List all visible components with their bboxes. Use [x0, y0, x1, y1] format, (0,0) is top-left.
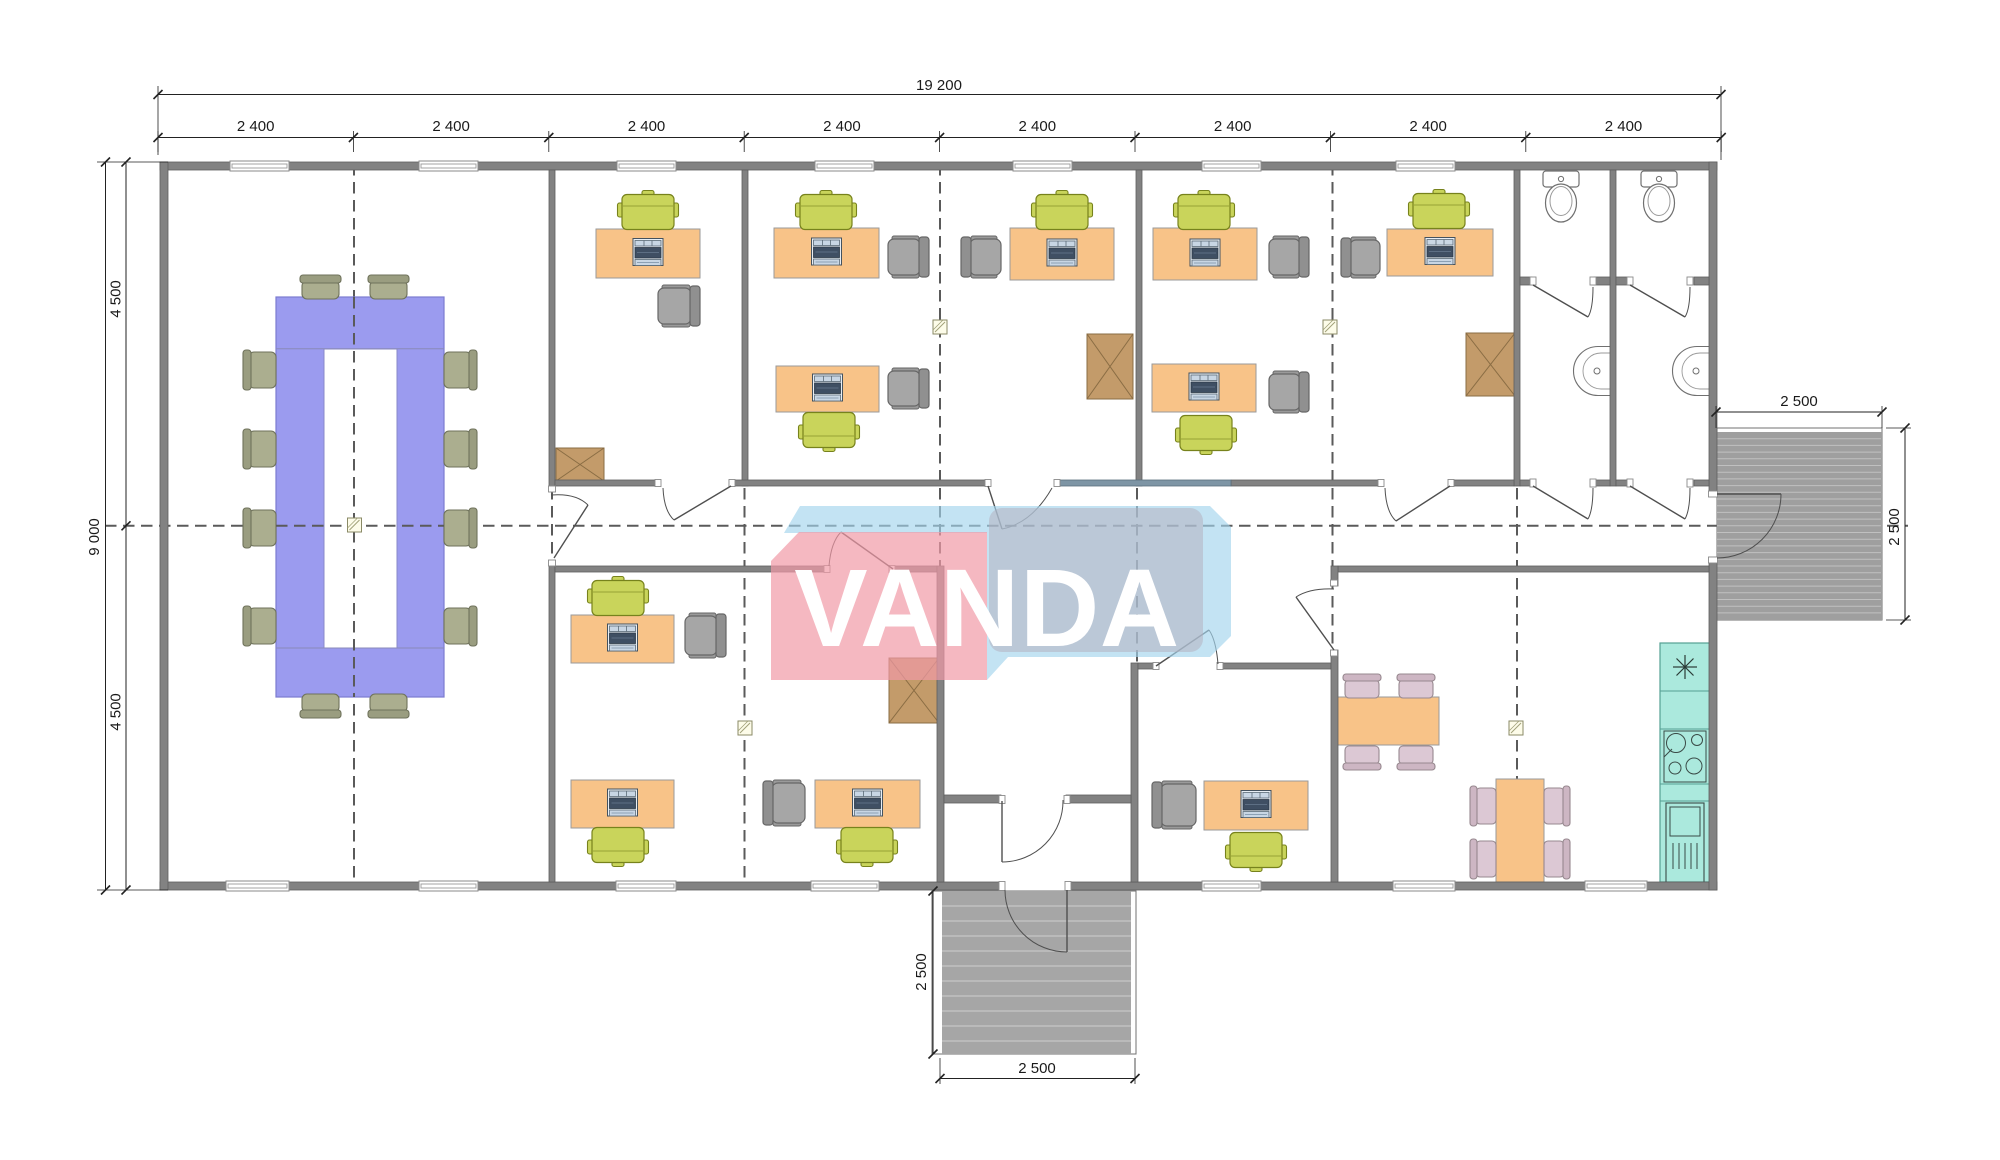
svg-text:4 500: 4 500 [108, 280, 125, 318]
svg-text:2 400: 2 400 [432, 118, 470, 135]
svg-text:2 400: 2 400 [1019, 118, 1057, 135]
svg-text:VANDA: VANDA [794, 547, 1179, 670]
svg-text:2 500: 2 500 [1018, 1060, 1056, 1077]
svg-text:2 400: 2 400 [237, 118, 275, 135]
svg-text:19 200: 19 200 [916, 77, 962, 94]
svg-text:2 400: 2 400 [823, 118, 861, 135]
svg-text:2 500: 2 500 [1886, 508, 1903, 546]
svg-text:4 500: 4 500 [108, 693, 125, 731]
svg-text:2 500: 2 500 [913, 953, 930, 991]
svg-text:2 400: 2 400 [1214, 118, 1252, 135]
svg-text:2 500: 2 500 [1780, 393, 1818, 410]
svg-text:2 400: 2 400 [628, 118, 666, 135]
svg-text:2 400: 2 400 [1409, 118, 1447, 135]
svg-text:9 000: 9 000 [86, 518, 103, 556]
svg-text:2 400: 2 400 [1605, 118, 1643, 135]
